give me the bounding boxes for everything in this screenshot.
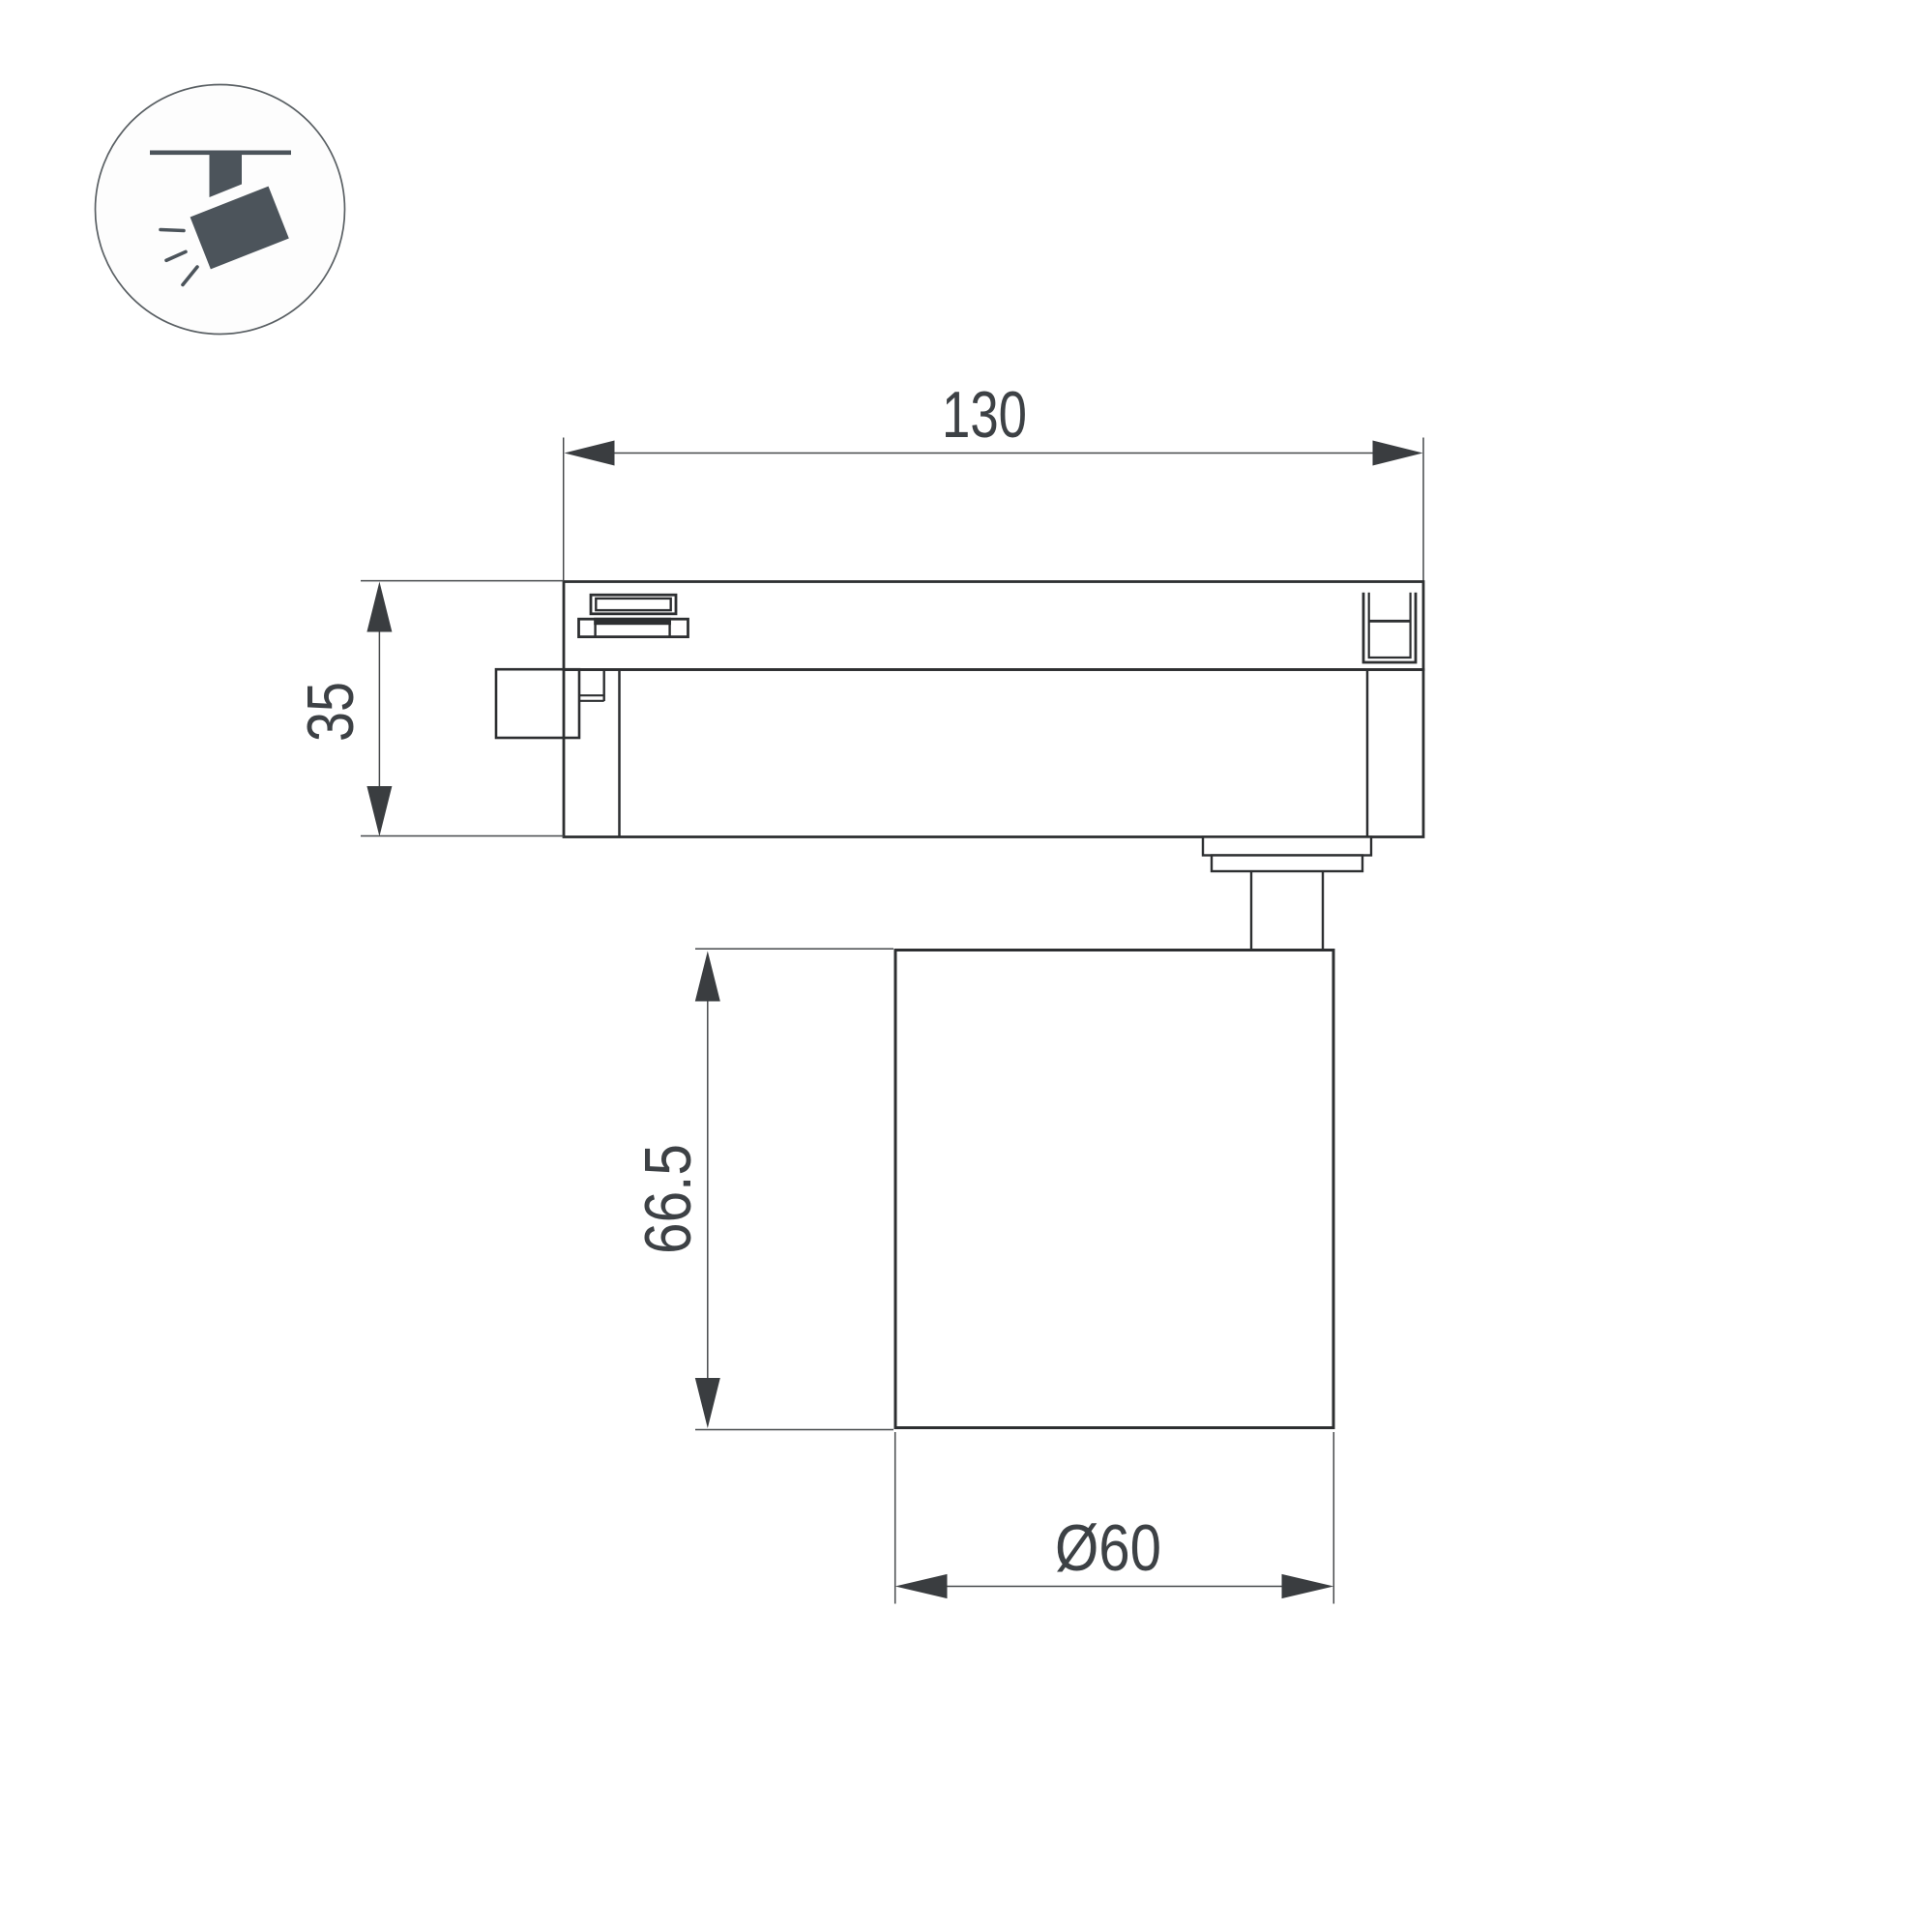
svg-text:35: 35 bbox=[294, 682, 367, 742]
svg-text:66.5: 66.5 bbox=[631, 1144, 705, 1254]
svg-text:130: 130 bbox=[942, 378, 1027, 452]
svg-text:Ø60: Ø60 bbox=[1055, 1511, 1161, 1585]
